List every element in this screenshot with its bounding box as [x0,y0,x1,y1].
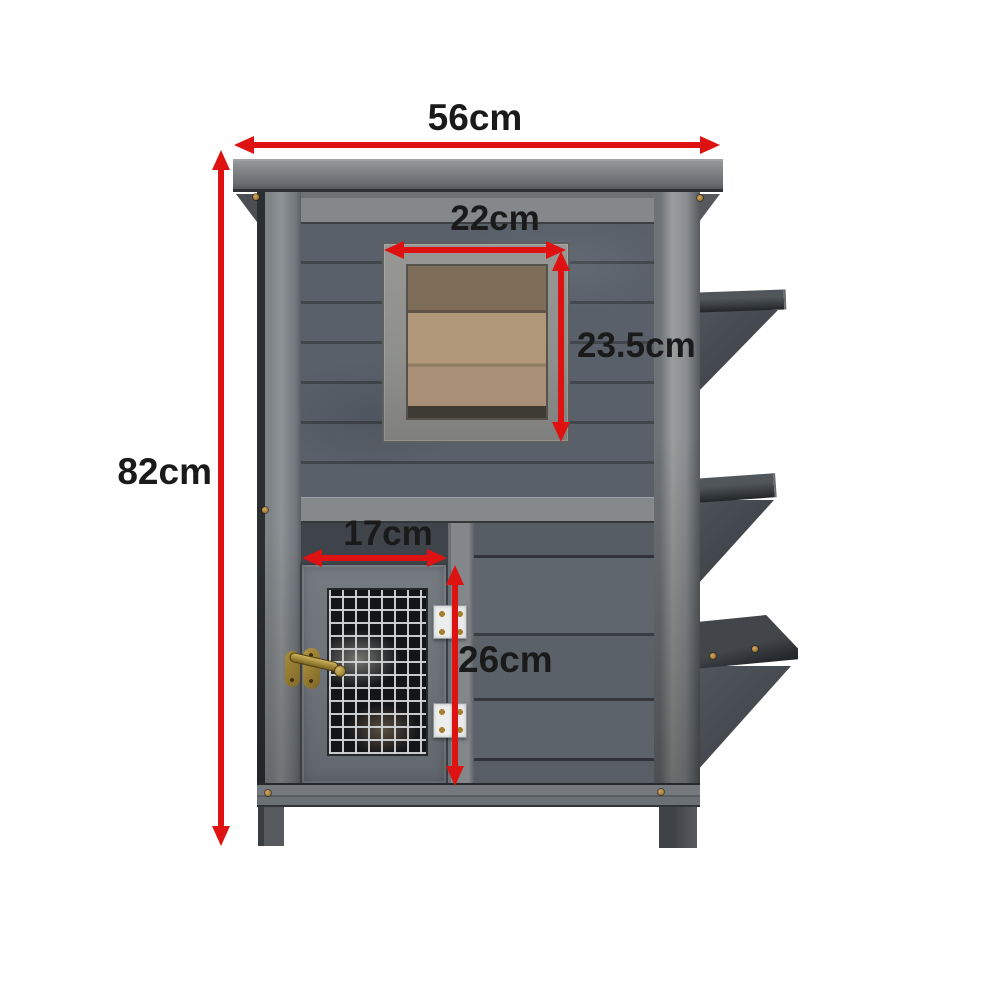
arrowhead-icon [552,422,570,442]
arrowhead-icon [212,150,230,170]
arrowhead-icon [212,826,230,846]
arrowhead-icon [700,136,720,154]
screw-head [658,789,664,795]
overall-width-arrow-line [252,142,704,148]
left-leg [258,806,284,846]
window-width-arrow-line [402,247,546,253]
window-width-label: 22cm [420,201,570,236]
door-height-label: 26cm [458,641,553,678]
step-3-bracket [697,666,791,771]
door-width-label: 17cm [313,516,463,551]
step-3-tread [692,615,798,669]
door-hinge-bottom-icon [433,703,467,738]
right-corner-post [654,192,700,805]
window-height-arrow-line [558,269,564,424]
screw-head [262,507,268,513]
arrowhead-icon [552,251,570,271]
latch-knob [334,665,346,677]
arrowhead-icon [446,766,464,786]
overall-width-label: 56cm [390,99,560,136]
roof [233,159,723,192]
overall-height-arrow-line [218,168,224,826]
left-corner-post [257,192,301,805]
screw-head [752,646,758,652]
bottom-rail [257,783,700,807]
step-1-bracket [698,310,778,392]
door-hinge-top-icon [433,605,467,639]
step-2-bracket [698,500,774,584]
arrowhead-icon [302,549,322,567]
arrowhead-icon [234,136,254,154]
step-1-tread [694,289,787,312]
door-width-arrow-line [320,555,429,561]
right-leg [659,806,697,848]
arrowhead-icon [446,565,464,585]
product-dimension-diagram: 56cm 82cm 22cm 23.5cm 17cm 26cm [0,0,1000,1000]
window-height-label: 23.5cm [577,328,696,363]
arrowhead-icon [384,241,404,259]
latch-icon [280,644,348,696]
hutch-illustration [0,0,1000,1000]
overall-height-label: 82cm [100,453,212,490]
step-2-tread [693,473,776,503]
screw-head [697,195,703,201]
screw-head [253,194,259,200]
window-opening [406,264,548,420]
screw-head [265,790,271,796]
screw-head [710,653,716,659]
